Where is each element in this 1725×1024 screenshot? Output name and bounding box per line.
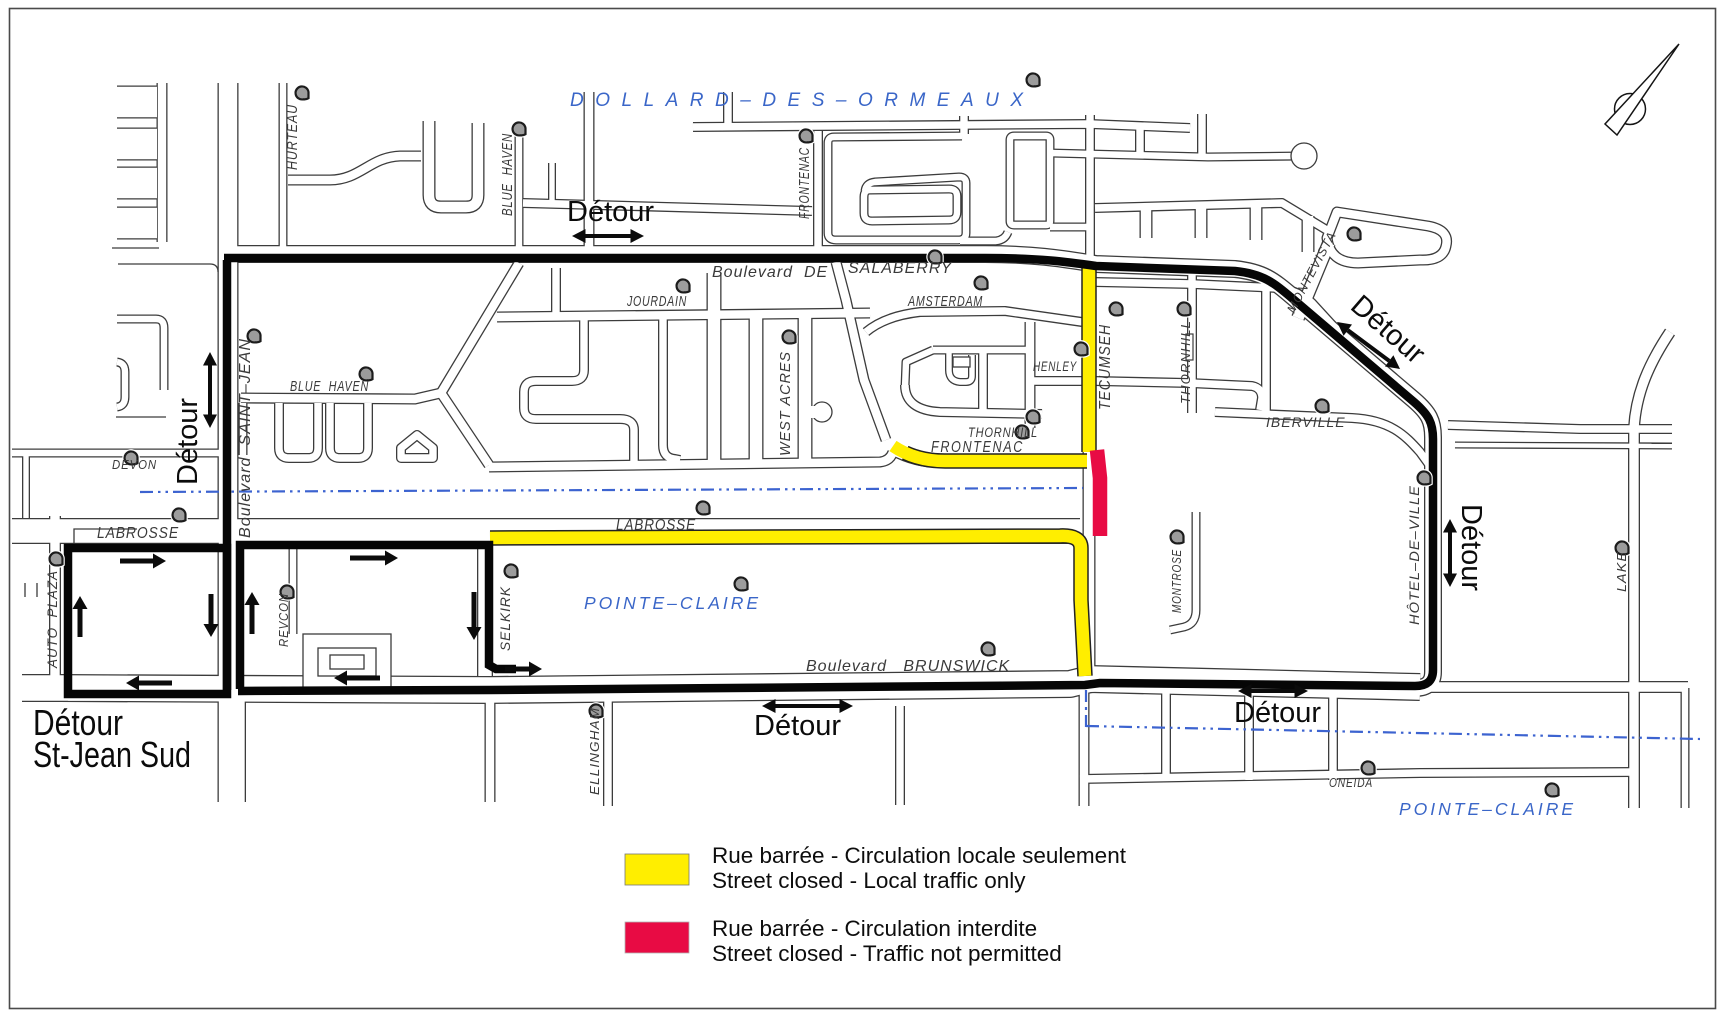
svg-text:Boulevard DE: Boulevard DE xyxy=(712,264,828,281)
svg-text:POINTE–CLAIRE: POINTE–CLAIRE xyxy=(1399,799,1576,819)
svg-text:LABROSSE: LABROSSE xyxy=(616,517,696,534)
svg-text:BLUE HAVEN: BLUE HAVEN xyxy=(290,378,369,395)
svg-text:JOURDAIN: JOURDAIN xyxy=(626,293,687,310)
svg-text:AMSTERDAM: AMSTERDAM xyxy=(907,293,983,310)
svg-text:LAKE: LAKE xyxy=(1614,551,1629,592)
svg-text:Détour: Détour xyxy=(1234,697,1321,729)
svg-text:REVCON: REVCON xyxy=(276,593,291,647)
svg-text:DOLLARD–DES–ORMEAUX: DOLLARD–DES–ORMEAUX xyxy=(570,90,1035,111)
svg-text:ELLINGHAM: ELLINGHAM xyxy=(587,707,602,795)
svg-text:Détour: Détour xyxy=(1455,504,1487,591)
svg-text:Détour: Détour xyxy=(567,196,654,228)
svg-text:AUTO PLAZA: AUTO PLAZA xyxy=(44,570,60,669)
svg-text:Rue barrée - Circulation inter: Rue barrée - Circulation interdite xyxy=(712,916,1037,941)
svg-text:SELKIRK: SELKIRK xyxy=(497,586,513,651)
svg-text:Boulevard BRUNSWICK: Boulevard BRUNSWICK xyxy=(806,658,1010,675)
svg-text:MONTROSE: MONTROSE xyxy=(1169,549,1184,613)
svg-text:FRONTENAC: FRONTENAC xyxy=(931,439,1024,456)
svg-text:LABROSSE: LABROSSE xyxy=(97,525,179,542)
svg-text:DEVON: DEVON xyxy=(112,457,157,472)
svg-text:Street closed - Traffic not pe: Street closed - Traffic not permitted xyxy=(712,941,1062,966)
svg-text:IBERVILLE: IBERVILLE xyxy=(1266,414,1346,430)
svg-text:BLUE HAVEN: BLUE HAVEN xyxy=(499,133,516,216)
svg-text:THORNHILL: THORNHILL xyxy=(1178,320,1193,404)
svg-text:Rue barrée - Circulation local: Rue barrée - Circulation locale seulemen… xyxy=(712,843,1127,868)
svg-text:TECUMSEH: TECUMSEH xyxy=(1097,324,1114,410)
svg-text:SALABERRY: SALABERRY xyxy=(848,260,953,277)
svg-text:St-Jean Sud: St-Jean Sud xyxy=(33,734,191,775)
svg-text:ONEIDA: ONEIDA xyxy=(1329,775,1373,790)
svg-text:Détour: Détour xyxy=(172,398,204,485)
svg-text:HÔTEL–DE–VILLE: HÔTEL–DE–VILLE xyxy=(1406,485,1422,625)
svg-text:HENLEY: HENLEY xyxy=(1033,358,1077,374)
svg-text:Détour: Détour xyxy=(754,710,841,742)
svg-text:FRONTENAC: FRONTENAC xyxy=(796,147,813,219)
svg-text:POINTE–CLAIRE: POINTE–CLAIRE xyxy=(584,593,761,613)
svg-text:Street closed - Local traffic: Street closed - Local traffic only xyxy=(712,868,1026,893)
svg-text:Boulevard SAINT–JEAN: Boulevard SAINT–JEAN xyxy=(237,338,254,538)
svg-text:THORNHILL: THORNHILL xyxy=(968,424,1038,440)
svg-text:HURTEAU: HURTEAU xyxy=(284,104,301,170)
svg-text:WEST ACRES: WEST ACRES xyxy=(777,351,794,456)
